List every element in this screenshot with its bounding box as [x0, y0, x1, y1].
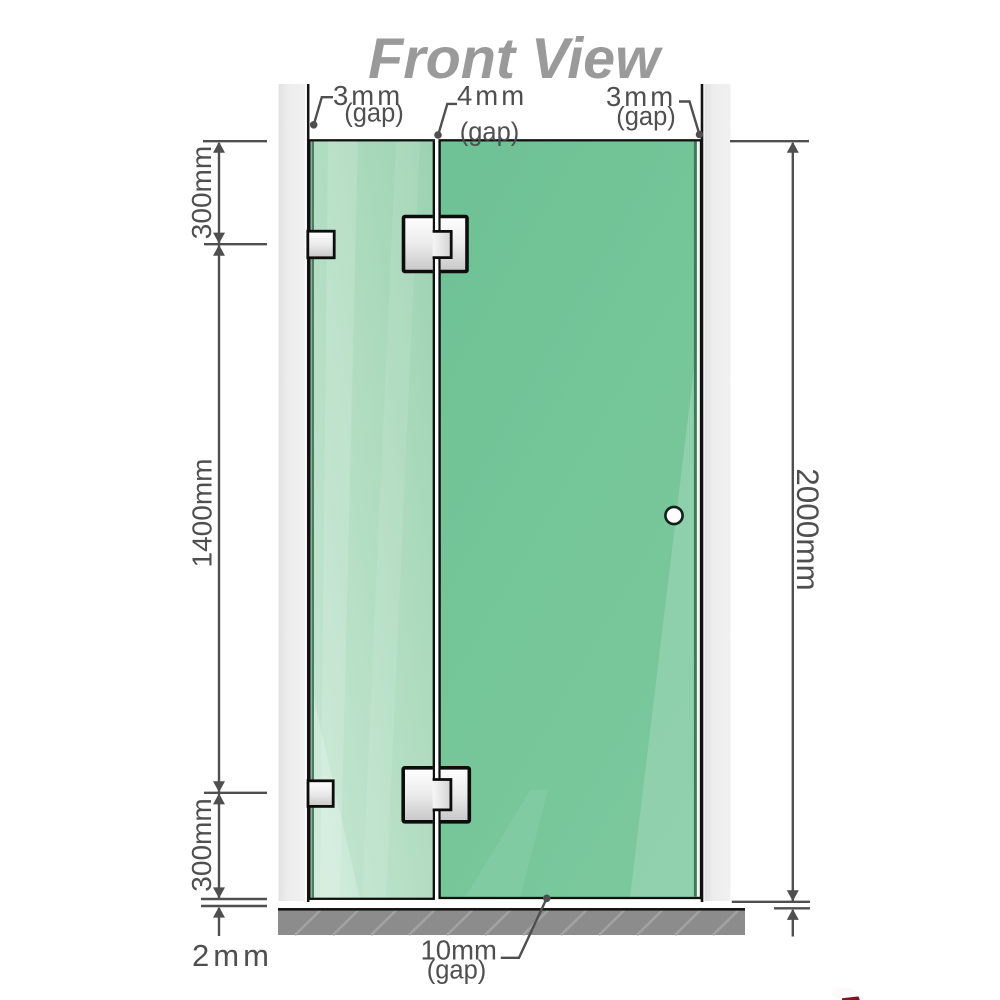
- svg-text:1400mm: 1400mm: [187, 459, 218, 568]
- svg-text:(gap): (gap): [427, 957, 487, 985]
- svg-text:2000mm: 2000mm: [790, 468, 826, 591]
- svg-text:(gap): (gap): [344, 100, 404, 128]
- svg-text:(gap): (gap): [616, 103, 676, 131]
- svg-text:300mm: 300mm: [186, 798, 217, 891]
- svg-text:2mm: 2mm: [192, 938, 273, 973]
- svg-text:(gap): (gap): [460, 119, 520, 147]
- svg-text:300mm: 300mm: [186, 146, 217, 239]
- svg-text:4mm: 4mm: [457, 80, 527, 111]
